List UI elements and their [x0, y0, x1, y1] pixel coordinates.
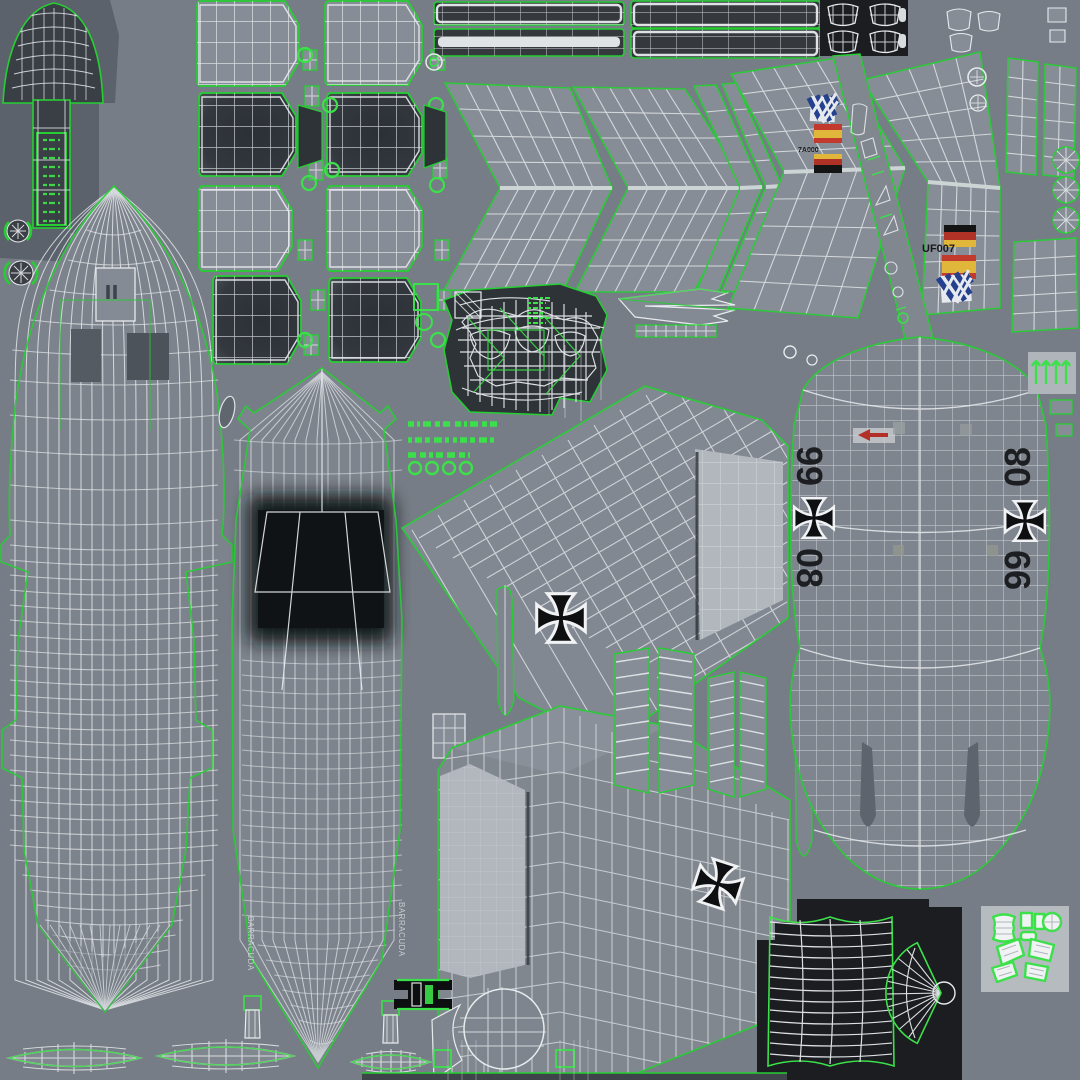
svg-text:08: 08	[789, 548, 830, 588]
svg-text:BARRACUDA: BARRACUDA	[397, 902, 406, 957]
svg-text:BARRACUDA: BARRACUDA	[246, 916, 255, 971]
svg-text:08: 08	[997, 447, 1038, 487]
svg-text:UF007: UF007	[922, 243, 955, 255]
svg-text:7A000: 7A000	[798, 147, 819, 154]
svg-text:99: 99	[997, 550, 1038, 590]
svg-text:99: 99	[789, 446, 830, 486]
